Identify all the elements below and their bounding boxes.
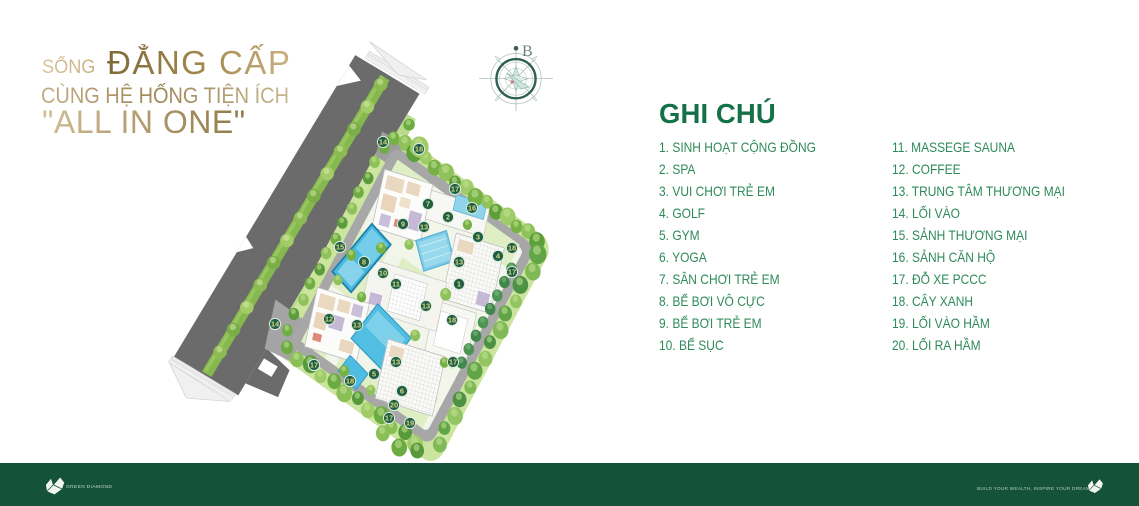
svg-text:3: 3 — [476, 233, 480, 242]
svg-text:9: 9 — [401, 220, 405, 229]
svg-text:18: 18 — [415, 145, 423, 154]
svg-text:16: 16 — [468, 204, 476, 213]
svg-text:1: 1 — [457, 280, 461, 289]
svg-text:17: 17 — [451, 185, 459, 194]
svg-text:18: 18 — [346, 377, 354, 386]
svg-text:14: 14 — [379, 138, 388, 147]
svg-text:18: 18 — [508, 244, 516, 253]
svg-text:13: 13 — [353, 321, 361, 330]
svg-text:13: 13 — [422, 302, 430, 311]
svg-text:15: 15 — [336, 243, 344, 252]
svg-text:13: 13 — [392, 358, 400, 367]
svg-text:13: 13 — [420, 223, 428, 232]
svg-text:12: 12 — [325, 315, 333, 324]
svg-text:17: 17 — [449, 358, 457, 367]
svg-text:B: B — [522, 43, 533, 60]
svg-text:20: 20 — [390, 401, 398, 410]
svg-text:10: 10 — [379, 269, 387, 278]
svg-text:2: 2 — [446, 213, 450, 222]
svg-text:5: 5 — [372, 370, 376, 379]
svg-text:6: 6 — [400, 387, 404, 396]
svg-text:11: 11 — [392, 280, 400, 289]
svg-text:17: 17 — [508, 268, 516, 277]
svg-text:17: 17 — [310, 361, 318, 370]
svg-text:18: 18 — [448, 316, 456, 325]
svg-text:19: 19 — [406, 419, 414, 428]
svg-text:7: 7 — [426, 200, 430, 209]
svg-text:8: 8 — [362, 258, 366, 267]
svg-text:17: 17 — [385, 414, 393, 423]
svg-text:14: 14 — [271, 320, 280, 329]
svg-text:13: 13 — [455, 258, 463, 267]
